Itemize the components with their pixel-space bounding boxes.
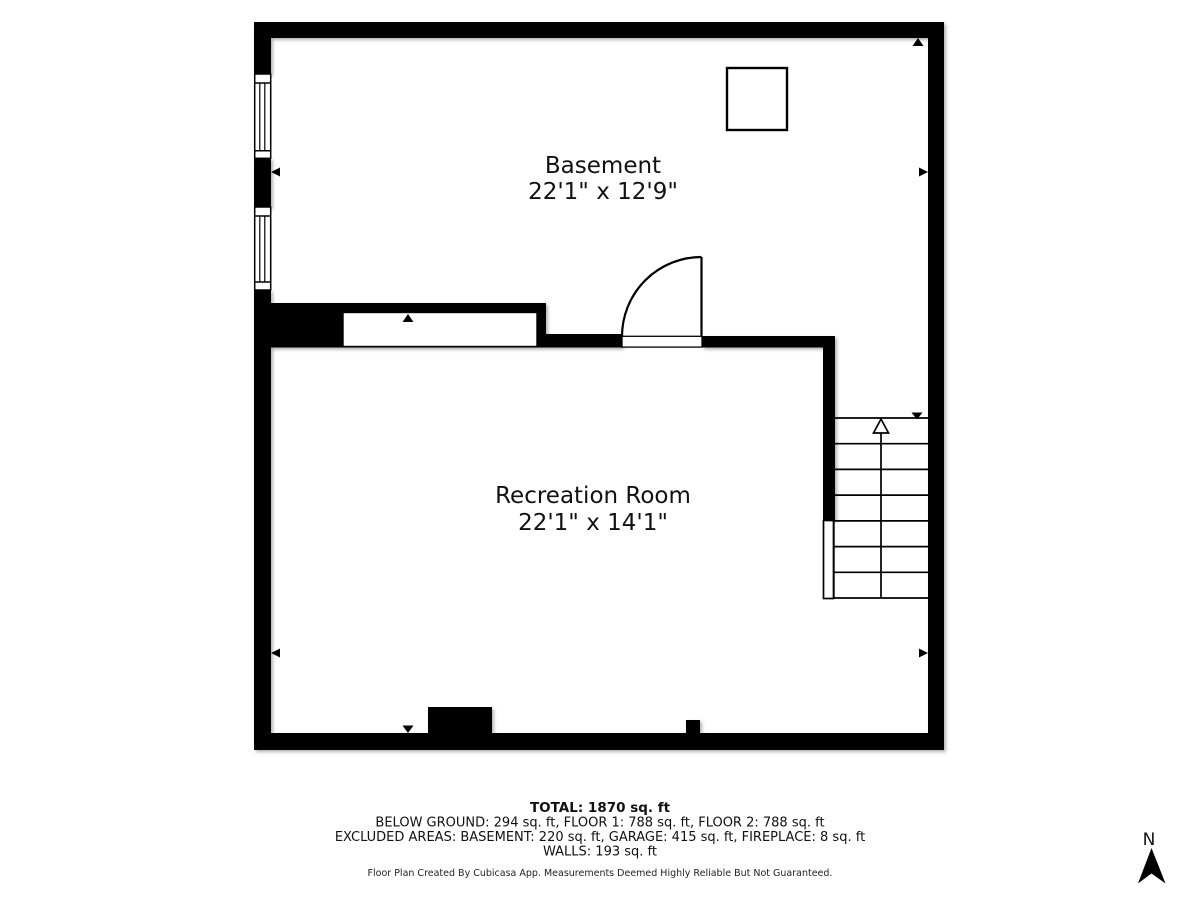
stair-railing <box>824 521 834 599</box>
recreation-room-name: Recreation Room <box>495 483 691 509</box>
north-arrow-icon <box>1138 848 1166 884</box>
stairs <box>834 418 928 598</box>
basement-room-name: Basement <box>545 153 661 179</box>
basement-room-dims: 22'1" x 12'9" <box>528 179 678 205</box>
marker-right-basement-icon <box>919 168 928 177</box>
chimney-box <box>727 68 787 130</box>
area-summary: TOTAL: 1870 sq. ft BELOW GROUND: 294 sq.… <box>335 800 865 860</box>
north-compass: N <box>1138 830 1166 884</box>
summary-excluded: EXCLUDED AREAS: BASEMENT: 220 sq. ft, GA… <box>335 830 865 845</box>
wall-post <box>686 720 700 734</box>
marker-right-recreation-icon <box>919 649 928 658</box>
summary-total: TOTAL: 1870 sq. ft <box>530 800 671 816</box>
disclaimer-text: Floor Plan Created By Cubicasa App. Meas… <box>368 868 833 879</box>
exterior-wall-left-pier <box>254 158 271 207</box>
stair-wall-vertical <box>823 336 835 520</box>
divider-wall-thin-right <box>702 336 835 348</box>
stairs-up-arrow-icon <box>874 419 889 433</box>
exterior-wall-right <box>928 22 944 750</box>
floorplan-canvas: Basement 22'1" x 12'9" Recreation Room 2… <box>0 0 1200 900</box>
summary-below-ground: BELOW GROUND: 294 sq. ft, FLOOR 1: 788 s… <box>375 816 824 831</box>
door-threshold <box>622 336 702 347</box>
exterior-wall-top <box>254 22 944 38</box>
floorplan-drawing: Basement 22'1" x 12'9" Recreation Room 2… <box>0 0 1200 900</box>
fireplace-block <box>428 707 492 734</box>
north-label: N <box>1143 830 1156 850</box>
exterior-wall-left-lower <box>254 290 271 733</box>
door <box>622 257 702 347</box>
walls <box>254 22 944 750</box>
wall-opening <box>343 313 537 347</box>
exterior-wall-left-upper <box>254 22 271 74</box>
marker-top-icon <box>913 38 924 46</box>
exterior-wall-bottom <box>254 733 944 750</box>
door-swing-arc <box>622 257 702 337</box>
marker-bottom-icon <box>403 726 414 734</box>
marker-left-recreation-icon <box>271 649 280 658</box>
marker-left-basement-icon <box>271 168 280 177</box>
recreation-room-dims: 22'1" x 14'1" <box>518 510 668 536</box>
window-icon-1 <box>255 74 271 158</box>
summary-walls: WALLS: 193 sq. ft <box>543 845 657 860</box>
window-icon-2 <box>255 207 271 290</box>
divider-wall-thin-left <box>546 334 622 348</box>
